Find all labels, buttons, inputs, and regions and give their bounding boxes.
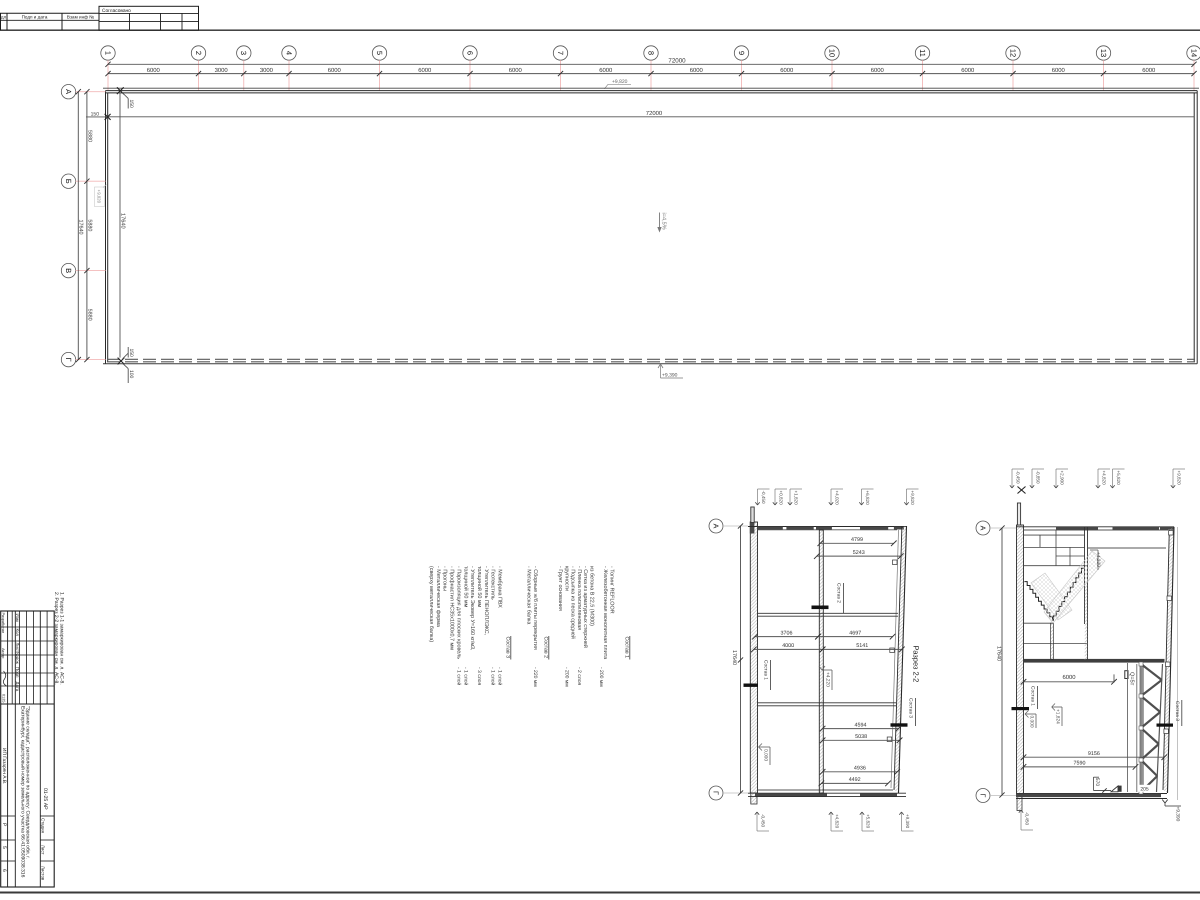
svg-text:2. Разрез 2-2 замаркирован см.: 2. Разрез 2-2 замаркирован см. л. АС-8. [53,592,59,685]
svg-text:(сверху металлическая балка): (сверху металлическая балка) [428,566,434,642]
svg-text:Взам инф №: Взам инф № [67,15,94,20]
svg-text:7: 7 [556,51,565,55]
svg-text:+1,820: +1,820 [793,491,798,506]
svg-text:14: 14 [1189,49,1198,57]
svg-text:Состав 2: Состав 2 [836,583,842,603]
svg-text:13: 13 [1099,49,1108,57]
svg-text:Q=5т: Q=5т [1129,672,1135,686]
svg-text:В: В [64,268,73,273]
svg-text:- Сборные ж/б плиты перекрытия: - Сборные ж/б плиты перекрытия [532,566,538,650]
svg-text:Состав 2: Состав 2 [543,637,549,659]
svg-text:+9,820: +9,820 [1176,471,1181,486]
svg-text:4492: 4492 [849,777,861,783]
svg-text:Лист: Лист [40,845,45,855]
svg-text:4697: 4697 [849,630,861,636]
svg-text:9: 9 [737,51,746,55]
svg-text:из бетона В 22,5 (М300): из бетона В 22,5 (М300) [589,566,595,626]
svg-text:6000: 6000 [690,67,704,74]
svg-text:+6,820: +6,820 [865,491,870,506]
svg-text:- Пленка полиэтиленовая: - Пленка полиэтиленовая [576,566,582,630]
svg-text:5243: 5243 [853,550,865,556]
svg-text:Дата: Дата [15,682,20,692]
svg-text:- 1 слой: - 1 слой [455,667,461,685]
svg-text:- Геотекстиль: - Геотекстиль [490,566,496,600]
svg-text:- Мембрана ПВХ: - Мембрана ПВХ [497,566,503,608]
svg-text:5: 5 [1,846,7,849]
svg-text:Изм: Изм [15,614,20,622]
svg-text:570: 570 [1094,778,1100,787]
svg-text:Екатеринбург, кадастровый номе: Екатеринбург, кадастровый номер земельно… [20,706,26,878]
svg-text:6000: 6000 [961,67,975,74]
svg-text:-0,850: -0,850 [1035,471,1040,484]
svg-text:крупности: крупности [563,566,569,591]
svg-text:ИП Газарян А.В.: ИП Газарян А.В. [1,748,7,784]
svg-text:5880: 5880 [86,130,92,142]
svg-text:Г: Г [979,794,988,798]
svg-text:7590: 7590 [1074,761,1086,767]
svg-text:205: 205 [1140,787,1149,793]
svg-text:- Пароизоляция для плоских кро: - Пароизоляция для плоских кровель [455,566,461,659]
svg-text:5: 5 [375,51,384,55]
svg-text:6000: 6000 [1052,67,1066,74]
svg-text:17640: 17640 [731,650,737,665]
svg-text:01-25 АР: 01-25 АР [42,788,48,810]
svg-text:0125: 0125 [2,694,6,702]
svg-text:Разработал: Разработал [1,613,5,634]
svg-text:+9,390: +9,390 [662,372,678,378]
svg-text:- 1 слой: - 1 слой [462,667,468,685]
svg-text:3000: 3000 [215,67,229,74]
svg-text:Состав 3: Состав 3 [1174,701,1180,721]
svg-text:- Металлическая ферма: - Металлическая ферма [435,566,441,627]
svg-text:- Топинг REFLOOR: - Топинг REFLOOR [609,566,615,614]
svg-text:6000: 6000 [780,67,794,74]
svg-text:+1,824: +1,824 [1055,709,1061,724]
svg-text:1: 1 [103,51,112,55]
svg-text:- 1 слой: - 1 слой [497,667,503,685]
svg-text:12: 12 [1008,49,1017,57]
svg-text:- 3 слоя: - 3 слоя [476,667,482,685]
svg-text:3706: 3706 [781,630,793,636]
svg-text:9156: 9156 [1088,751,1100,757]
svg-text:- Металлическая балка: - Металлическая балка [526,566,532,624]
svg-text:+9,820: +9,820 [910,491,915,506]
svg-text:Состав 1: Состав 1 [624,637,630,659]
svg-text:5141: 5141 [856,643,868,649]
svg-text:17640: 17640 [995,646,1001,661]
svg-text:- 1 слой: - 1 слой [490,667,496,685]
svg-text:4936: 4936 [854,766,866,772]
svg-text:+4,220: +4,220 [824,672,830,687]
svg-text:4594: 4594 [855,722,867,728]
svg-text:-0,450: -0,450 [1024,812,1029,825]
svg-text:3000: 3000 [260,67,274,74]
svg-text:72000: 72000 [646,110,663,117]
svg-text:+9,390: +9,390 [1175,807,1181,822]
svg-text:А: А [979,526,988,531]
svg-text:Состав 1: Состав 1 [1030,686,1036,706]
svg-text:6000: 6000 [147,67,161,74]
svg-text:i=4,5%: i=4,5% [661,213,668,230]
svg-text:6000: 6000 [599,67,613,74]
svg-text:150: 150 [128,349,134,358]
svg-text:6000: 6000 [509,67,523,74]
svg-text:Лист№док: Лист№док [15,643,20,664]
svg-text:5038: 5038 [855,734,867,740]
svg-text:толщиной 50 мм: толщиной 50 мм [462,566,468,608]
svg-text:+9,820: +9,820 [97,190,102,204]
svg-text:- Подсыпка из песка средней: - Подсыпка из песка средней [570,566,576,639]
svg-text:10: 10 [827,49,836,57]
svg-text:6000: 6000 [1142,67,1156,74]
svg-text:5880: 5880 [86,309,92,321]
svg-text:72000: 72000 [668,58,686,65]
svg-text:+4,820: +4,820 [834,814,839,829]
svg-text:100: 100 [128,370,134,379]
svg-text:+4,220: +4,220 [1095,552,1101,567]
svg-text:+9,390: +9,390 [905,814,910,829]
svg-text:+4,020: +4,020 [834,491,839,506]
svg-text:4799: 4799 [851,537,863,543]
svg-text:Б: Б [64,179,73,184]
svg-text:Состав 1: Состав 1 [763,660,769,680]
svg-text:Подп и дата: Подп и дата [22,15,48,20]
svg-text:- 220 мм: - 220 мм [532,667,538,687]
svg-text:+5,820: +5,820 [865,814,870,829]
svg-text:Г: Г [64,358,73,362]
svg-text:- 200 мм: - 200 мм [598,667,604,687]
svg-text:- Железобетонная монолитная пл: - Железобетонная монолитная плита [602,566,608,659]
svg-text:+4,820: +4,820 [1101,471,1106,486]
svg-text:Кол: Кол [15,629,20,637]
svg-text:6000: 6000 [418,67,432,74]
svg-text:Стадия: Стадия [40,818,45,834]
svg-text:4000: 4000 [782,643,794,649]
svg-text:17640: 17640 [119,213,125,229]
svg-text:0,000: 0,000 [762,749,768,761]
svg-text:-0,450: -0,450 [1015,471,1020,484]
svg-text:-0,450: -0,450 [760,814,765,827]
svg-text:+2,900: +2,900 [1059,471,1064,486]
svg-text:Согласовано: Согласовано [102,8,131,14]
svg-text:6: 6 [1,869,7,872]
svg-text:0,000: 0,000 [1029,716,1035,728]
svg-text:6000: 6000 [1062,674,1076,681]
svg-text:- Грунт основания: - Грунт основания [557,566,563,611]
svg-text:6000: 6000 [871,67,885,74]
svg-text:3: 3 [239,51,248,55]
svg-text:толщиной 50 мм: толщиной 50 мм [476,566,482,608]
svg-text:17640: 17640 [78,220,84,235]
svg-text:дл: дл [1,15,7,20]
svg-text:+5,820: +5,820 [1116,471,1121,486]
svg-text:- Прогоны: - Прогоны [442,566,448,591]
svg-text:А: А [712,524,721,529]
svg-text:6000: 6000 [328,67,342,74]
svg-text:Автор: Автор [1,648,5,658]
svg-text:5880: 5880 [86,219,92,231]
svg-text:Состав 3: Состав 3 [908,698,914,718]
svg-text:8: 8 [646,51,655,55]
svg-text:150: 150 [128,100,134,109]
svg-text:Подп: Подп [15,667,20,678]
svg-text:6: 6 [465,51,474,55]
svg-text:-0,450: -0,450 [761,491,766,504]
svg-text:+0,820: +0,820 [778,491,783,506]
svg-text:- Профнастил НС35х1000х0,7 мм: - Профнастил НС35х1000х0,7 мм [449,566,455,650]
svg-text:- Утеплитель ПЕНОПЛЭКС,: - Утеплитель ПЕНОПЛЭКС, [483,566,489,636]
svg-text:4: 4 [284,51,293,55]
svg-text:- 200 мм: - 200 мм [563,667,569,687]
svg-text:- 2 слоя: - 2 слоя [576,667,582,685]
svg-text:Г: Г [712,791,721,795]
svg-text:Состав 3: Состав 3 [505,637,511,659]
svg-text:А: А [64,89,73,94]
svg-text:11: 11 [918,49,927,57]
svg-text:- Сетка из арматурных стержней: - Сетка из арматурных стержней [582,566,588,648]
svg-text:- Утеплитель Эковер У=160 кг/м: - Утеплитель Эковер У=160 кг/м3, [469,566,475,651]
svg-text:Разрез 2-2: Разрез 2-2 [912,646,921,683]
svg-text:2: 2 [194,51,203,55]
svg-text:Листов: Листов [40,866,45,881]
